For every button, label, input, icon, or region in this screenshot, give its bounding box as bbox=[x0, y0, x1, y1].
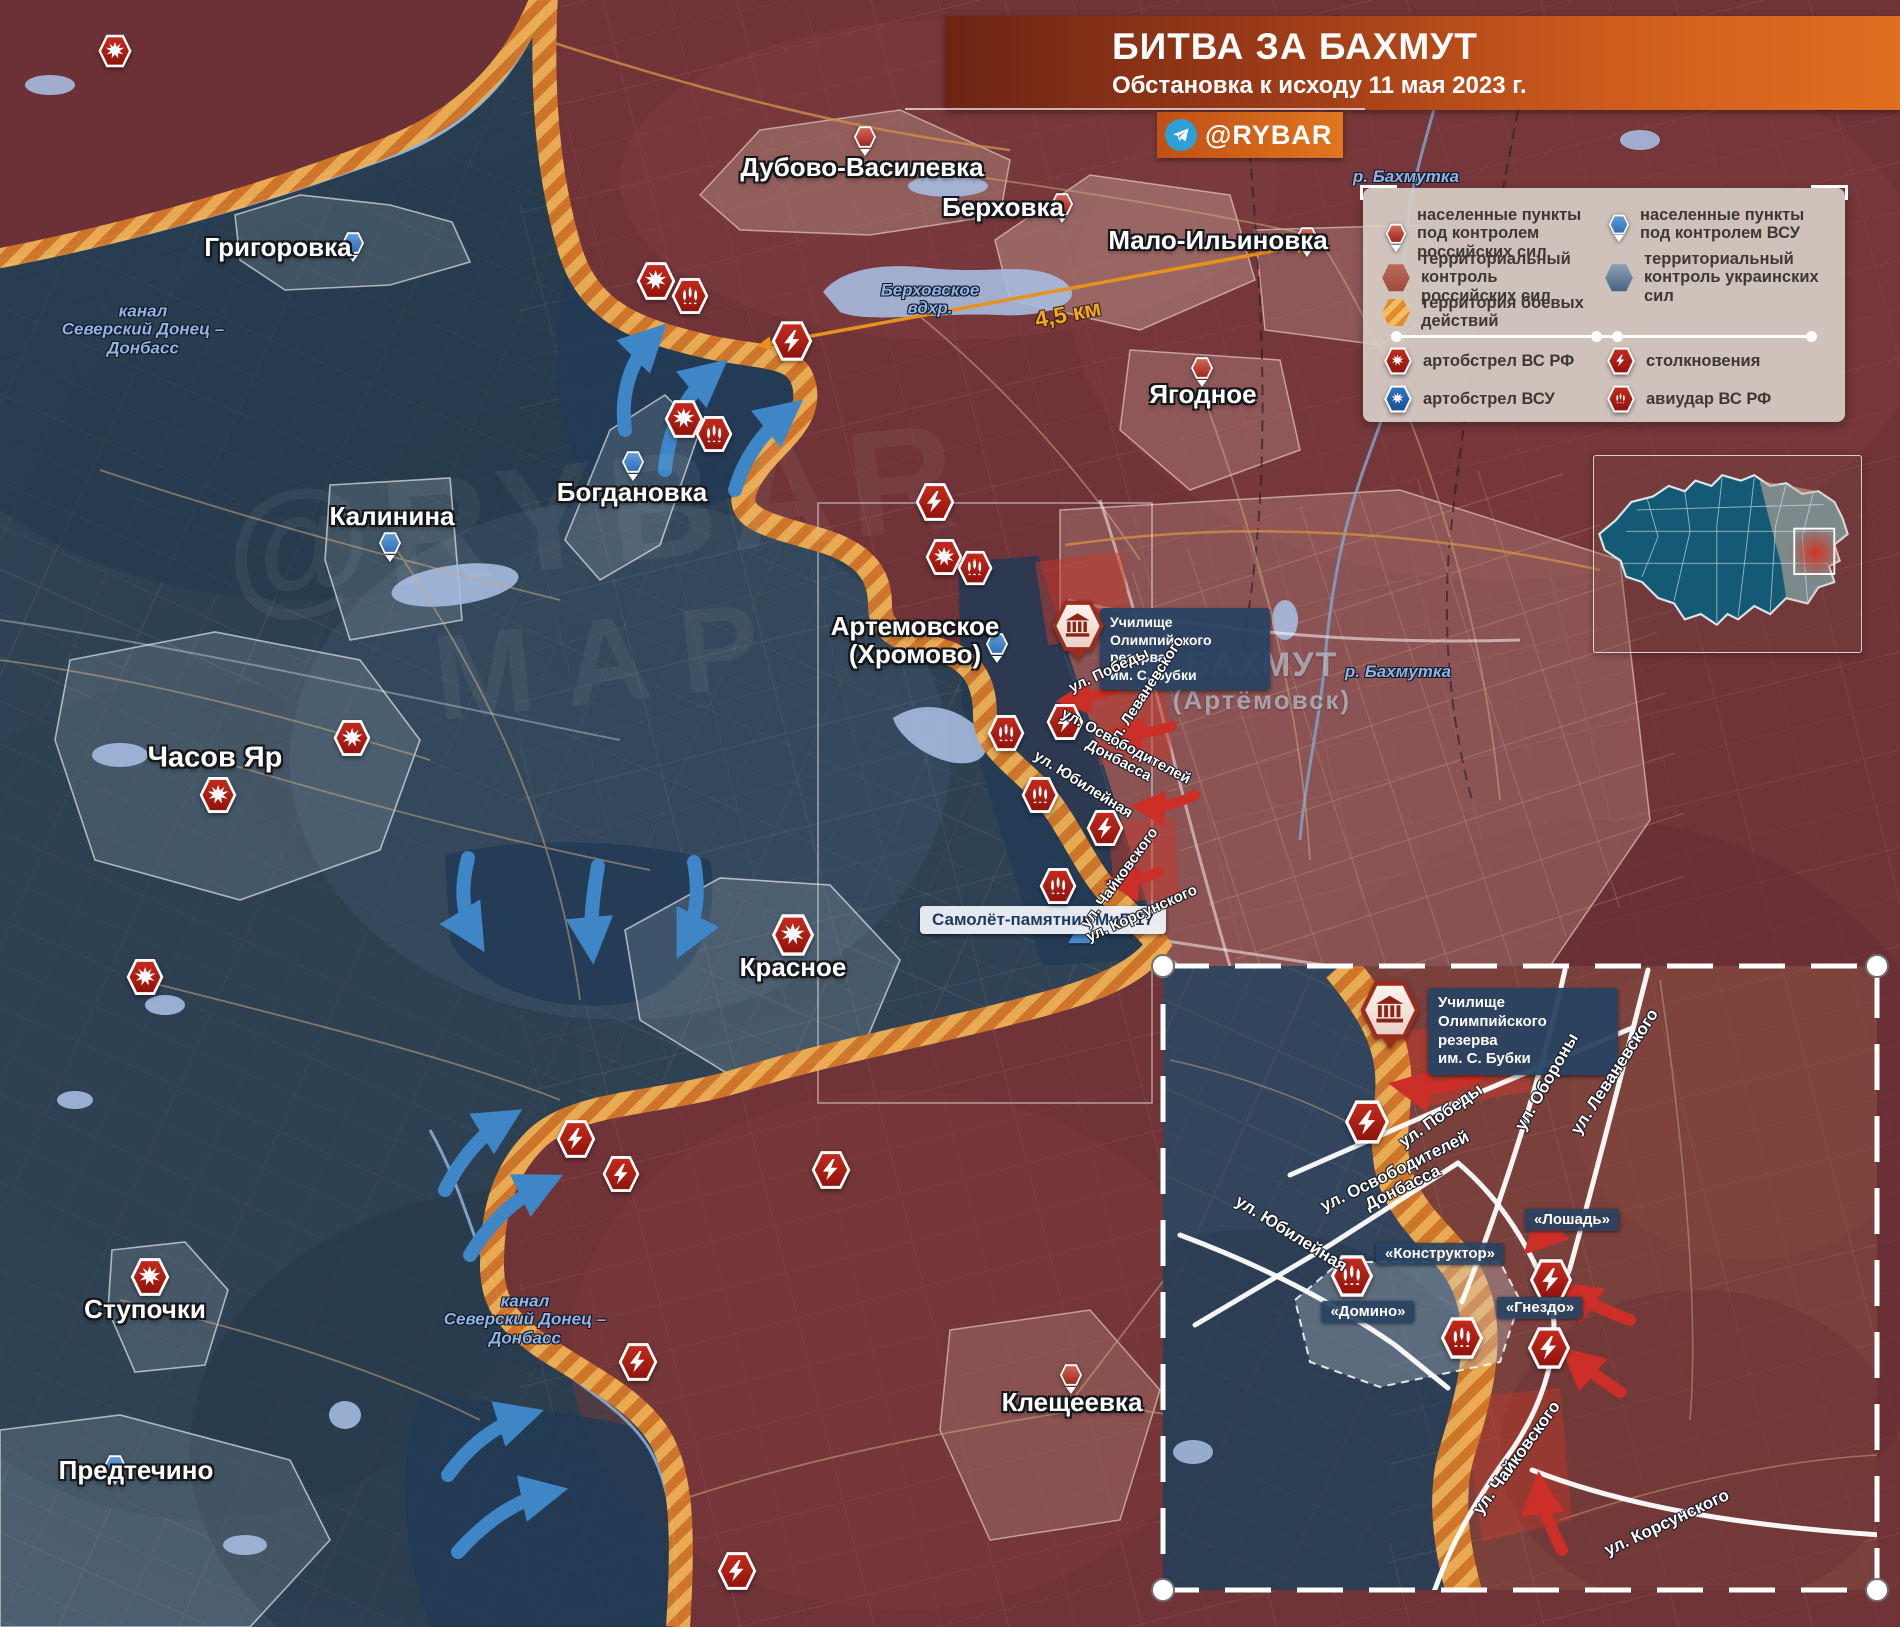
building-tag--конструктор-: «Конструктор» bbox=[1376, 1243, 1504, 1265]
airstrike-icon bbox=[956, 549, 994, 587]
legend-divider bbox=[1393, 335, 1815, 338]
legend-item-airstrike-ru: авиудар ВС РФ bbox=[1606, 384, 1818, 414]
settlement-label-берховское: Берховскоевдхр. bbox=[881, 282, 980, 319]
explosion-icon bbox=[125, 957, 165, 997]
legend-item-shelling-ru: артобстрел ВС РФ bbox=[1383, 346, 1595, 376]
legend-label: артобстрел ВС РФ bbox=[1423, 352, 1574, 370]
callout-school-main: Училище Олимпийского резерва им. С. Бубк… bbox=[1100, 608, 1270, 690]
settlement-marker-red bbox=[1059, 1363, 1083, 1387]
lightning-icon-inset bbox=[1343, 1098, 1391, 1146]
legend: населенные пункты под контролем российск… bbox=[1363, 188, 1845, 422]
lightning-icon bbox=[770, 319, 814, 363]
settlement-label-красное: Красное bbox=[740, 953, 847, 981]
settlement-label-мало-ильиновка: Мало-Ильиновка bbox=[1108, 226, 1327, 254]
settlement-label-канал: каналСеверский Донец –Донбасс bbox=[444, 1292, 607, 1347]
lightning-icon bbox=[601, 1154, 641, 1194]
airstrike-icon bbox=[694, 414, 734, 454]
explosion-icon bbox=[97, 33, 133, 69]
settlement-label-ягодное: Ягодное bbox=[1149, 380, 1256, 408]
map-stage: @RYBARMAP БАХМУТ (Артёмовск) 4,5 км БИТВ… bbox=[0, 0, 1900, 1627]
airstrike-icon bbox=[1020, 775, 1060, 815]
title-band: БИТВА ЗА БАХМУТ Обстановка к исходу 11 м… bbox=[945, 16, 1900, 110]
callout-line: Олимпийского резерва bbox=[1438, 1013, 1608, 1051]
settlement-marker-blue bbox=[378, 531, 402, 555]
callout-school-inset: Училище Олимпийского резерва им. С. Бубк… bbox=[1428, 988, 1618, 1075]
airstrike-icon bbox=[670, 276, 710, 316]
building-tag--лошадь-: «Лошадь» bbox=[1525, 1209, 1619, 1231]
settlement-marker-red bbox=[853, 125, 877, 149]
airstrike-ru-icon bbox=[1606, 384, 1636, 414]
settlement-label-богдановка: Богдановка bbox=[557, 478, 707, 506]
frame-line bbox=[905, 108, 1365, 110]
settlement-label-канал: каналСеверский Донец –Донбасс bbox=[62, 302, 225, 357]
school-building-icon-inset bbox=[1358, 978, 1422, 1042]
airstrike-icon-inset bbox=[1439, 1315, 1485, 1361]
ukraine-minimap bbox=[1593, 455, 1862, 653]
territory-ua-icon bbox=[1604, 263, 1634, 293]
legend-label: столкновения bbox=[1646, 352, 1760, 370]
settlement-ua-icon bbox=[1608, 213, 1630, 235]
settlement-label-предтечино: Предтечино bbox=[59, 1456, 214, 1484]
lightning-icon bbox=[555, 1118, 597, 1160]
settlement-marker-red bbox=[1190, 356, 1214, 380]
legend-item-shelling-ua: артобстрел ВСУ bbox=[1383, 384, 1595, 414]
telegram-icon bbox=[1165, 119, 1197, 151]
settlement-label-берховка: Берховка bbox=[942, 193, 1064, 221]
school-building-icon bbox=[1050, 598, 1106, 654]
explosion-icon bbox=[198, 775, 238, 815]
building-tag--гнездо-: «Гнездо» bbox=[1497, 1297, 1583, 1319]
settlement-label-р-бахмутка: р. Бахмутка bbox=[1345, 663, 1451, 681]
airstrike-icon bbox=[1038, 866, 1078, 906]
settlement-label-дубово-василевка: Дубово-Василевка bbox=[740, 153, 983, 181]
channel-name: @RYBAR bbox=[1205, 120, 1332, 151]
lightning-icon bbox=[716, 1550, 758, 1592]
settlement-ru-icon bbox=[1385, 223, 1407, 245]
legend-label: территориальный контроль украинских сил bbox=[1644, 250, 1820, 305]
legend-label: артобстрел ВСУ bbox=[1423, 390, 1555, 408]
lightning-icon bbox=[617, 1341, 659, 1383]
lightning-icon bbox=[810, 1149, 852, 1191]
lightning-icon-inset bbox=[1526, 1325, 1572, 1371]
legend-label: территория боевых действий bbox=[1421, 294, 1597, 331]
shelling-ua-icon bbox=[1383, 384, 1413, 414]
combat-zone-icon bbox=[1381, 297, 1411, 327]
settlement-marker-blue bbox=[621, 450, 645, 474]
legend-item-combat-zone: территория боевых действий bbox=[1381, 294, 1597, 331]
shelling-ru-icon bbox=[1383, 346, 1413, 376]
callout-line: им. С. Бубки bbox=[1110, 667, 1260, 685]
settlement-label-клещеевка: Клещеевка bbox=[1002, 1388, 1143, 1416]
telegram-badge[interactable]: @RYBAR bbox=[1157, 112, 1343, 158]
callout-line: им. С. Бубки bbox=[1438, 1050, 1608, 1069]
explosion-icon bbox=[332, 718, 372, 758]
territory-ru-icon bbox=[1381, 263, 1411, 293]
settlement-label-ступочки: Ступочки bbox=[84, 1295, 206, 1323]
building-tag--домино-: «Домино» bbox=[1321, 1301, 1414, 1323]
explosion-icon bbox=[129, 1256, 171, 1298]
settlement-label-артемовское: Артемовское(Хромово) bbox=[831, 612, 1000, 668]
ukraine-shape bbox=[1594, 456, 1861, 652]
settlement-label-р-бахмутка: р. Бахмутка bbox=[1353, 168, 1459, 186]
map-title: БИТВА ЗА БАХМУТ bbox=[1112, 26, 1900, 68]
legend-item-clashes: столкновения bbox=[1606, 346, 1818, 376]
settlement-label-калинина: Калинина bbox=[330, 502, 455, 530]
legend-label: авиудар ВС РФ bbox=[1646, 390, 1771, 408]
settlement-label-григоровка: Григоровка bbox=[204, 233, 351, 261]
clashes-icon bbox=[1606, 346, 1636, 376]
callout-line: Училище bbox=[1110, 614, 1260, 632]
legend-item-territory-ua: территориальный контроль украинских сил bbox=[1604, 250, 1820, 305]
callout-line: Училище bbox=[1438, 994, 1608, 1013]
legend-item-settlement-ua: населенные пункты под контролем ВСУ bbox=[1608, 206, 1820, 243]
legend-label: населенные пункты под контролем ВСУ bbox=[1640, 206, 1820, 243]
airstrike-icon bbox=[986, 713, 1026, 753]
settlement-label-часов-яр: Часов Яр bbox=[148, 742, 283, 773]
map-subtitle: Обстановка к исходу 11 мая 2023 г. bbox=[1112, 72, 1900, 100]
lightning-icon bbox=[914, 481, 956, 523]
